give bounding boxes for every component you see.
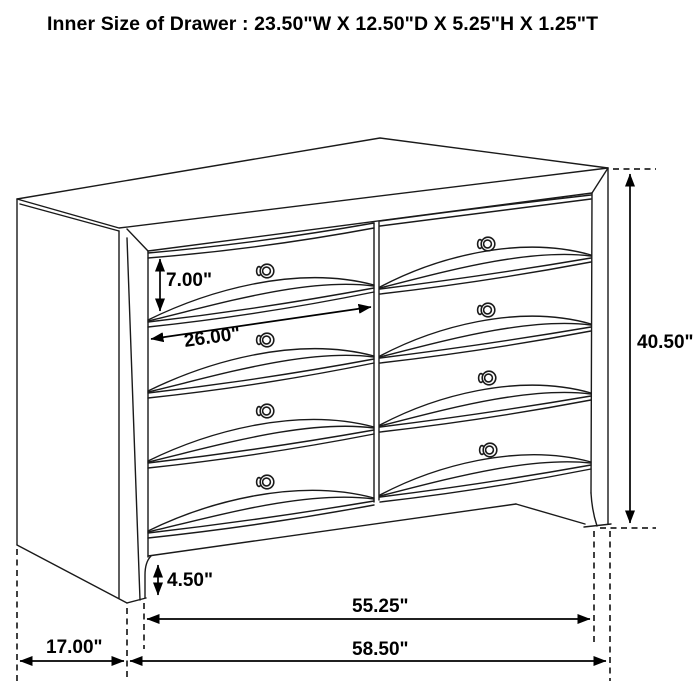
drawer-knob: [257, 475, 274, 489]
drawer-knob: [480, 443, 497, 457]
dimension-label: 7.00": [166, 270, 212, 291]
dimension-label: 55.25": [352, 596, 409, 617]
drawer-knob: [257, 264, 274, 278]
dresser-dimension-diagram: Inner Size of Drawer : 23.50"W X 12.50"D…: [0, 0, 700, 700]
drawer-knob: [257, 333, 274, 347]
dimension-label: 40.50": [637, 332, 694, 353]
drawer-knob: [479, 371, 496, 385]
drawer-knob: [478, 303, 495, 317]
drawer-knob: [257, 404, 274, 418]
dimension-foot-clearance: 4.50": [158, 565, 213, 595]
dimension-label: 58.50": [352, 639, 409, 660]
dimension-label: 17.00": [46, 637, 103, 658]
drawer-knob: [478, 237, 495, 251]
page-background: [0, 0, 700, 700]
drawing-canvas: Inner Size of Drawer : 23.50"W X 12.50"D…: [0, 0, 700, 700]
dimension-label: 4.50": [167, 570, 213, 591]
drawing-title: Inner Size of Drawer : 23.50"W X 12.50"D…: [47, 13, 598, 35]
